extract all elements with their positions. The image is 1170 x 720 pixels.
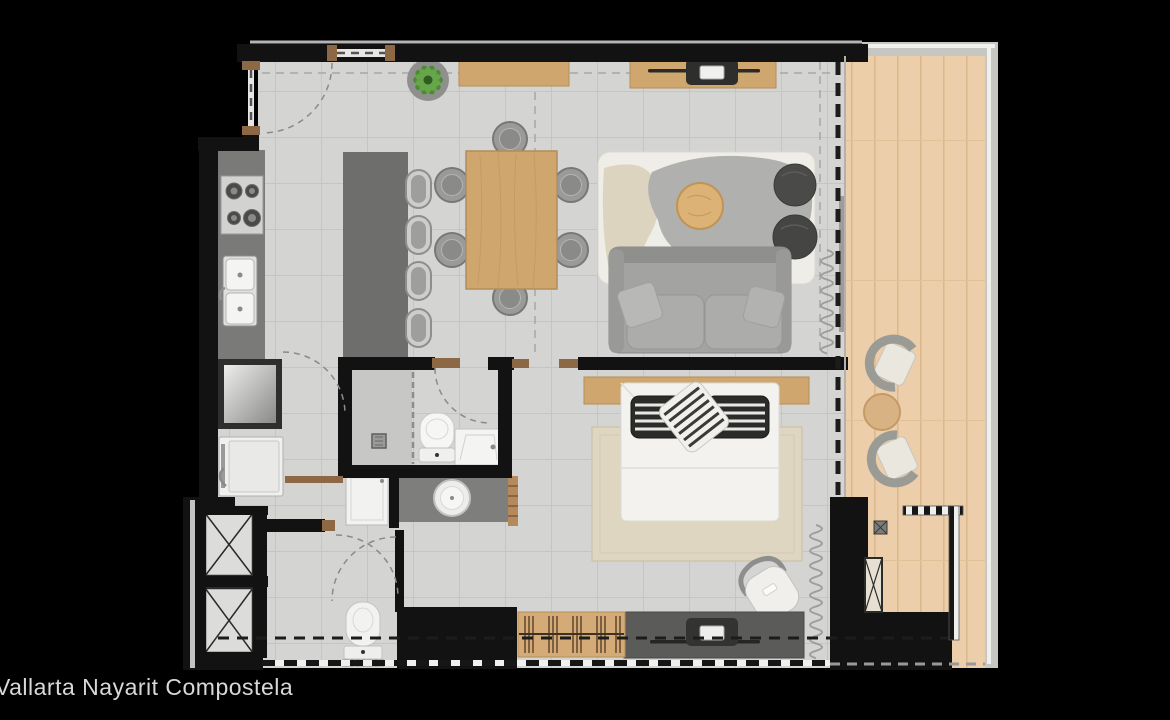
dining-table xyxy=(466,151,557,289)
slatted-bench xyxy=(518,612,625,657)
bathroom-sink-icon xyxy=(455,429,500,465)
vanity xyxy=(398,476,508,522)
shower-floor xyxy=(352,370,412,465)
caption: Vallarta Nayarit Compostela xyxy=(0,674,293,701)
bedroom-dresser xyxy=(624,612,804,658)
kitchen-island xyxy=(343,152,408,358)
floor-plan-image: Vallarta Nayarit Compostela xyxy=(0,0,1170,720)
refrigerator-icon xyxy=(218,359,282,429)
sofa xyxy=(609,247,791,353)
kitchen-sink-icon xyxy=(220,256,257,326)
wall-outer-edge xyxy=(190,500,195,668)
side-table-icon xyxy=(864,394,900,430)
wc-toilet-icon xyxy=(342,602,384,667)
washer-icon xyxy=(219,437,283,496)
stove-icon xyxy=(221,176,263,234)
shower-drain-icon xyxy=(372,434,386,448)
toilet-icon xyxy=(419,413,455,462)
towel-shelf-icon xyxy=(508,476,518,526)
floor-plan-svg xyxy=(0,0,1170,720)
potted-plant-icon xyxy=(407,59,449,101)
coffee-table-icon xyxy=(677,183,723,229)
shower-cabin-icon xyxy=(346,473,388,525)
sideboard xyxy=(459,59,569,86)
